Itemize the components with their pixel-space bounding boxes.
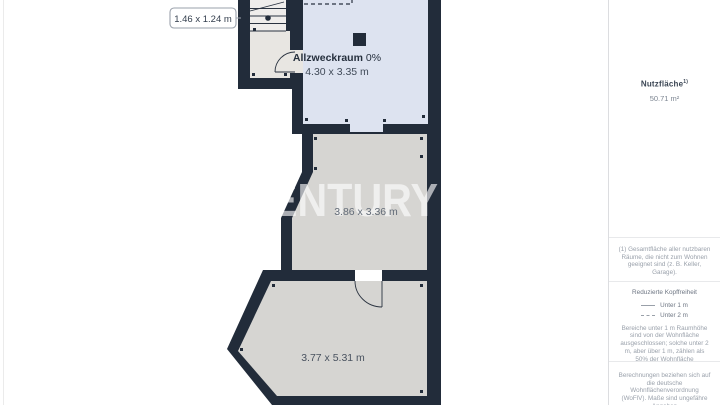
solid-line-icon bbox=[641, 305, 655, 306]
middle-room-dimensions: 3.86 x 3.36 m bbox=[334, 206, 398, 218]
legend-under-2m-label: Unter 2 m bbox=[660, 312, 688, 320]
allzweckraum-opening bbox=[350, 124, 383, 132]
middle-door-opening bbox=[355, 270, 382, 281]
legend-under-1m: Unter 1 m bbox=[618, 301, 711, 311]
floorplan-page: CENTURY Allzweckraum0% 4.30 x 3.35 m 3.8… bbox=[0, 0, 720, 405]
dashed-line-icon bbox=[641, 315, 655, 316]
watermark-text: CENTURY bbox=[240, 174, 438, 226]
usable-area-footnote-marker: 1) bbox=[683, 79, 688, 85]
sidebar-divider bbox=[609, 237, 720, 238]
headroom-section: Reduzierte Kopffreiheit Unter 1 m Unter … bbox=[609, 289, 720, 363]
usable-area-title: Nutzfläche1) bbox=[609, 79, 720, 89]
footnote-text: (1) Gesamtfläche aller nutzbaren Räume, … bbox=[609, 246, 720, 277]
floor-plan-canvas: CENTURY Allzweckraum0% 4.30 x 3.35 m 3.8… bbox=[0, 0, 608, 405]
size-callout: 1.46 x 1.24 m bbox=[170, 8, 241, 28]
usable-area-label: Nutzfläche bbox=[641, 80, 683, 89]
stair-newel-post bbox=[265, 15, 271, 21]
usable-area-block: Nutzfläche1) 50.71 m² bbox=[609, 79, 720, 103]
sidebar-divider bbox=[609, 361, 720, 362]
allzweckraum-label: Allzweckraum0% bbox=[293, 52, 381, 64]
usable-area-value: 50.71 m² bbox=[609, 94, 720, 103]
allzweckraum-dimensions: 4.30 x 3.35 m bbox=[305, 66, 369, 78]
legend-under-2m: Unter 2 m bbox=[618, 311, 711, 321]
sidebar-divider bbox=[609, 281, 720, 282]
headroom-note: Bereiche unter 1 m Raumhöhe sind von der… bbox=[618, 325, 711, 364]
small-room-dimensions: 1.46 x 1.24 m bbox=[174, 14, 232, 25]
info-sidebar: Nutzfläche1) 50.71 m² (1) Gesamtfläche a… bbox=[608, 0, 720, 405]
column bbox=[353, 33, 366, 46]
room-bottom bbox=[238, 281, 427, 396]
bottom-room-dimensions: 3.77 x 5.31 m bbox=[301, 352, 365, 364]
disclaimer-text: Berechnungen beziehen sich auf die deuts… bbox=[609, 372, 720, 405]
headroom-title: Reduzierte Kopffreiheit bbox=[618, 289, 711, 297]
legend-under-1m-label: Unter 1 m bbox=[660, 302, 688, 310]
landing-floor bbox=[250, 31, 290, 78]
